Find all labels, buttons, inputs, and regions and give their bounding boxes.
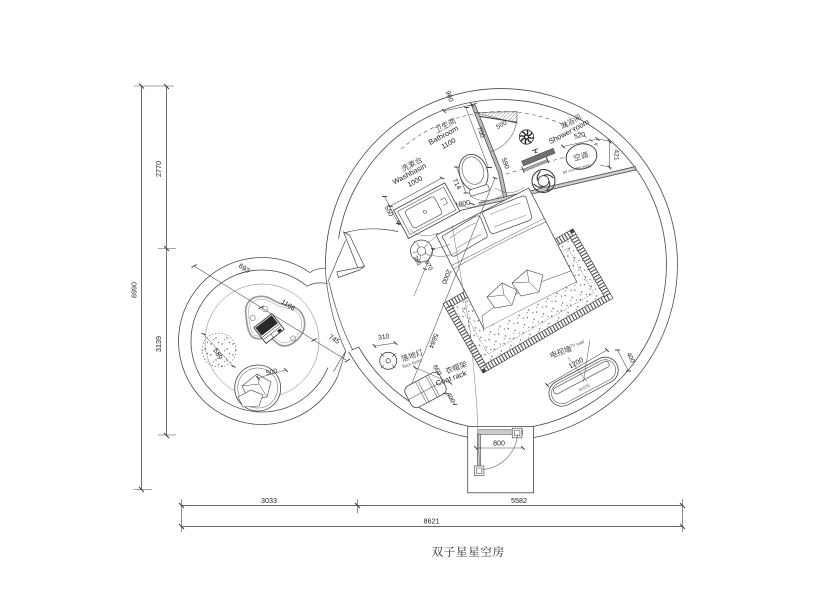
svg-text:421: 421	[613, 149, 620, 161]
svg-text:3033: 3033	[261, 496, 277, 505]
svg-text:6990: 6990	[130, 282, 139, 298]
svg-text:3139: 3139	[154, 336, 163, 352]
svg-text:800: 800	[493, 441, 505, 448]
svg-text:2770: 2770	[154, 161, 163, 177]
svg-text:8621: 8621	[424, 517, 440, 526]
svg-text:5582: 5582	[511, 496, 527, 505]
